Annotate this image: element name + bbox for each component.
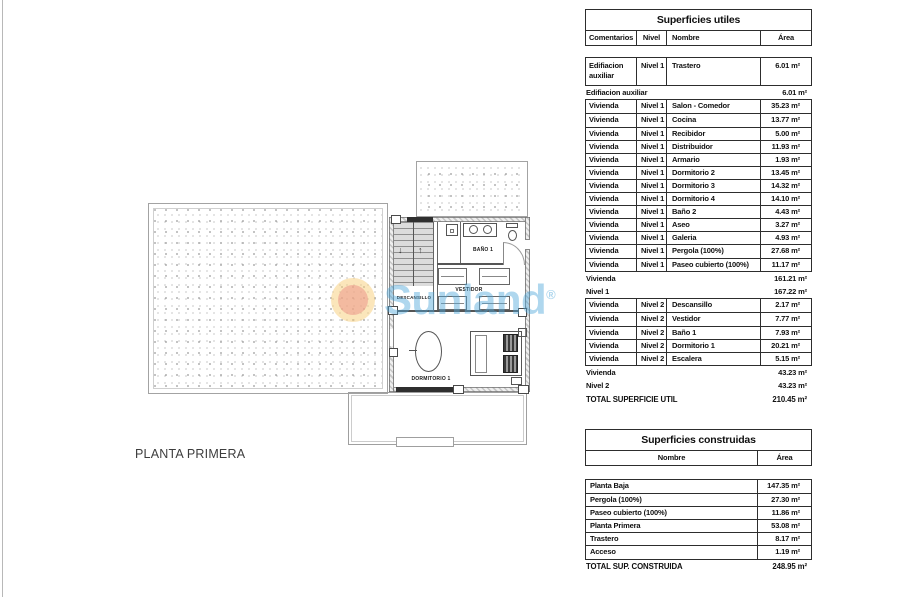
table-row: ViviendaNivel 1Paseo cubierto (100%)11.1… bbox=[586, 258, 811, 271]
cell: Nivel 1 bbox=[636, 245, 666, 257]
table-row: Edifiacion auxiliarNivel 1Trastero6.01 m… bbox=[586, 58, 811, 85]
value: 43.23 m² bbox=[778, 366, 812, 379]
column-header: Nivel bbox=[636, 31, 666, 45]
cell: Vivienda bbox=[586, 180, 636, 192]
cell: Vivienda bbox=[586, 193, 636, 205]
window-left bbox=[389, 329, 394, 346]
table-row: Planta Primera53.08 m² bbox=[586, 519, 811, 532]
cell: Nivel 1 bbox=[636, 167, 666, 179]
subtotal-row: Vivienda161.21 m² bbox=[585, 272, 812, 285]
cell: Nivel 1 bbox=[636, 100, 666, 113]
cell: Dormitorio 4 bbox=[666, 193, 760, 205]
table-superficies-construidas: Superficies construidas Nombre Área Plan… bbox=[585, 429, 812, 574]
cell: Vivienda bbox=[586, 100, 636, 113]
cell: Nivel 2 bbox=[636, 340, 666, 352]
cell: Vivienda bbox=[586, 154, 636, 166]
cell: Vivienda bbox=[586, 353, 636, 365]
cell: Nivel 2 bbox=[636, 313, 666, 325]
column-header: Nombre bbox=[666, 31, 760, 45]
cell: 11.93 m² bbox=[760, 141, 811, 153]
table-gap bbox=[585, 46, 812, 57]
window-right bbox=[525, 239, 530, 250]
cell: Nivel 1 bbox=[636, 141, 666, 153]
washbasin bbox=[446, 224, 458, 236]
table-row: ViviendaNivel 2Vestidor7.77 m² bbox=[586, 312, 811, 325]
bathtub-faucet bbox=[409, 350, 417, 351]
cell: Paseo cubierto (100%) bbox=[666, 259, 760, 271]
cell: 27.30 m² bbox=[757, 494, 811, 506]
partition-bath-left bbox=[460, 222, 461, 265]
toilet-tank bbox=[506, 223, 518, 228]
cell: Armario bbox=[666, 154, 760, 166]
cell: Pergola (100%) bbox=[586, 494, 757, 506]
subtotal-row: Edifiacion auxiliar6.01 m² bbox=[585, 86, 812, 99]
cell: 4.43 m² bbox=[760, 206, 811, 218]
cell: Planta Baja bbox=[586, 480, 757, 493]
cell: Dormitorio 1 bbox=[666, 340, 760, 352]
value: 248.95 m² bbox=[772, 560, 812, 575]
stair-arrow-down-icon: ↓ bbox=[398, 246, 403, 255]
subtotal-row: Nivel 1167.22 m² bbox=[585, 285, 812, 298]
table-row: ViviendaNivel 2Baño 17.93 m² bbox=[586, 326, 811, 339]
table-row: ViviendaNivel 1Dormitorio 414.10 m² bbox=[586, 192, 811, 205]
cell: 14.32 m² bbox=[760, 180, 811, 192]
table-row: Paseo cubierto (100%)11.86 m² bbox=[586, 506, 811, 519]
value: 161.21 m² bbox=[774, 272, 812, 285]
table-row: ViviendaNivel 1Baño 24.43 m² bbox=[586, 205, 811, 218]
cell: 1.19 m² bbox=[757, 546, 811, 558]
table-row: Acceso1.19 m² bbox=[586, 545, 811, 558]
cell: 53.08 m² bbox=[757, 520, 811, 532]
bed-footboard bbox=[475, 335, 487, 373]
column-header-row: Nombre Área bbox=[586, 451, 811, 465]
table-body: Planta Baja147.35 m²Pergola (100%)27.30 … bbox=[585, 479, 812, 574]
cell: Vivienda bbox=[586, 219, 636, 231]
column-header: Comentarios bbox=[586, 31, 636, 45]
cell: Nivel 2 bbox=[636, 299, 666, 312]
sink-right bbox=[483, 225, 492, 234]
room-label-dormitorio: DORMITORIO 1 bbox=[407, 376, 455, 382]
cell: Vestidor bbox=[666, 313, 760, 325]
cell: Acceso bbox=[586, 546, 757, 558]
watermark-brand-text: Sunland bbox=[384, 276, 546, 323]
cell: Vivienda bbox=[586, 245, 636, 257]
cell: Aseo bbox=[666, 219, 760, 231]
value: 6.01 m² bbox=[782, 86, 812, 99]
wall-marker bbox=[518, 385, 529, 394]
cell: Vivienda bbox=[586, 114, 636, 126]
slider-door-bottom bbox=[396, 387, 456, 392]
column-header: Área bbox=[757, 451, 811, 465]
total-row: TOTAL SUP. CONSTRUIDA248.95 m² bbox=[585, 560, 812, 575]
table-row: Planta Baja147.35 m² bbox=[586, 480, 811, 493]
table-row: ViviendaNivel 2Escalera5.15 m² bbox=[586, 352, 811, 365]
wall-marker bbox=[453, 385, 464, 394]
cell: 1.93 m² bbox=[760, 154, 811, 166]
table-header: Superficies utiles Comentarios Nivel Nom… bbox=[585, 9, 812, 46]
cell: Descansillo bbox=[666, 299, 760, 312]
table-title: Superficies utiles bbox=[586, 10, 811, 31]
cell: Paseo cubierto (100%) bbox=[586, 507, 757, 519]
cell: Nivel 1 bbox=[636, 180, 666, 192]
table-header: Superficies construidas Nombre Área bbox=[585, 429, 812, 466]
table-row: ViviendaNivel 2Descansillo2.17 m² bbox=[586, 299, 811, 312]
sheet-frame-left-line bbox=[2, 0, 3, 597]
cell: Nivel 1 bbox=[636, 219, 666, 231]
table-row: ViviendaNivel 1Dormitorio 213.45 m² bbox=[586, 166, 811, 179]
cell: Nivel 2 bbox=[636, 327, 666, 339]
column-header: Área bbox=[760, 31, 811, 45]
label: TOTAL SUPERFICIE UTIL bbox=[585, 393, 677, 408]
cell: Nivel 1 bbox=[636, 114, 666, 126]
cell: Recibidor bbox=[666, 128, 760, 140]
cell: Pergola (100%) bbox=[666, 245, 760, 257]
nightstand bbox=[511, 377, 522, 385]
table-grid-box: Edifiacion auxiliarNivel 1Trastero6.01 m… bbox=[585, 57, 812, 86]
table-gap bbox=[585, 466, 812, 479]
washbasin-bowl bbox=[450, 229, 454, 233]
cell: 3.27 m² bbox=[760, 219, 811, 231]
balcony-step bbox=[396, 437, 454, 447]
cell: 7.93 m² bbox=[760, 327, 811, 339]
cell: Vivienda bbox=[586, 167, 636, 179]
value: 167.22 m² bbox=[774, 285, 812, 298]
balcony-inner-line bbox=[351, 395, 524, 442]
cell: 7.77 m² bbox=[760, 313, 811, 325]
cell: Trastero bbox=[586, 533, 757, 545]
cell: 13.45 m² bbox=[760, 167, 811, 179]
cell: Escalera bbox=[666, 353, 760, 365]
cell: Cocina bbox=[666, 114, 760, 126]
cell: Planta Primera bbox=[586, 520, 757, 532]
table-row: ViviendaNivel 1Cocina13.77 m² bbox=[586, 113, 811, 126]
cell: Baño 1 bbox=[666, 327, 760, 339]
table-row: ViviendaNivel 1Armario1.93 m² bbox=[586, 153, 811, 166]
cell: 147.35 m² bbox=[757, 480, 811, 493]
value: 43.23 m² bbox=[778, 379, 812, 392]
bathtub bbox=[415, 331, 442, 372]
cell: 11.17 m² bbox=[760, 259, 811, 271]
bath-door-swing-arc bbox=[503, 242, 525, 265]
cell: Nivel 1 bbox=[636, 232, 666, 244]
cell: Nivel 1 bbox=[636, 154, 666, 166]
table-row: ViviendaNivel 1Recibidor5.00 m² bbox=[586, 127, 811, 140]
cell: Nivel 1 bbox=[636, 193, 666, 205]
cell: 35.23 m² bbox=[760, 100, 811, 113]
total-row: TOTAL SUPERFICIE UTIL210.45 m² bbox=[585, 393, 812, 408]
table-row: Pergola (100%)27.30 m² bbox=[586, 493, 811, 506]
cell: Distribuidor bbox=[666, 141, 760, 153]
column-header: Nombre bbox=[586, 451, 757, 465]
subtotal-row: Nivel 243.23 m² bbox=[585, 379, 812, 392]
cell: Galeria bbox=[666, 232, 760, 244]
cell: 4.93 m² bbox=[760, 232, 811, 244]
label: Nivel 1 bbox=[585, 285, 609, 298]
cell: 14.10 m² bbox=[760, 193, 811, 205]
wall-bath-bottom bbox=[437, 263, 504, 265]
registered-trademark-icon: ® bbox=[546, 287, 555, 302]
cell: Dormitorio 3 bbox=[666, 180, 760, 192]
cell: Salon - Comedor bbox=[666, 100, 760, 113]
pillow bbox=[503, 355, 518, 373]
cell: Nivel 1 bbox=[636, 206, 666, 218]
cell: Baño 2 bbox=[666, 206, 760, 218]
cell: 2.17 m² bbox=[760, 299, 811, 312]
cell: Vivienda bbox=[586, 299, 636, 312]
nightstand bbox=[518, 328, 527, 337]
wall-marker bbox=[389, 348, 398, 357]
table-row: ViviendaNivel 1Distribuidor11.93 m² bbox=[586, 140, 811, 153]
stair-arrow-up-icon: ↑ bbox=[418, 246, 423, 255]
subtotal-row: Vivienda43.23 m² bbox=[585, 366, 812, 379]
column-header-row: Comentarios Nivel Nombre Área bbox=[586, 31, 811, 45]
cell: 11.86 m² bbox=[757, 507, 811, 519]
pillow bbox=[503, 334, 518, 352]
table-row: ViviendaNivel 1Galeria4.93 m² bbox=[586, 231, 811, 244]
sink-left bbox=[469, 225, 478, 234]
cell: 5.00 m² bbox=[760, 128, 811, 140]
label: Nivel 2 bbox=[585, 379, 609, 392]
cell: Vivienda bbox=[586, 327, 636, 339]
cell: Vivienda bbox=[586, 141, 636, 153]
watermark-brand: Sunland® bbox=[384, 273, 555, 322]
cell: Nivel 2 bbox=[636, 353, 666, 365]
cell: Vivienda bbox=[586, 259, 636, 271]
cell: Vivienda bbox=[586, 206, 636, 218]
toilet-bowl bbox=[508, 230, 517, 241]
label: Vivienda bbox=[585, 366, 616, 379]
label: Edifiacion auxiliar bbox=[585, 86, 647, 99]
cell: 5.15 m² bbox=[760, 353, 811, 365]
cell: Nivel 1 bbox=[636, 259, 666, 271]
table-row: ViviendaNivel 1Dormitorio 314.32 m² bbox=[586, 179, 811, 192]
cell: Trastero bbox=[666, 58, 760, 85]
table-title: Superficies construidas bbox=[586, 430, 811, 451]
cell: 13.77 m² bbox=[760, 114, 811, 126]
wall-marker bbox=[391, 215, 401, 224]
floor-plan: ↓ ↑ DESCANSILLO BAÑO 1 VESTIDOR DORMITOR… bbox=[0, 0, 578, 600]
label: Vivienda bbox=[585, 272, 616, 285]
cell: 27.68 m² bbox=[760, 245, 811, 257]
value: 210.45 m² bbox=[772, 393, 812, 408]
cell: Vivienda bbox=[586, 128, 636, 140]
table-grid-box: Planta Baja147.35 m²Pergola (100%)27.30 … bbox=[585, 479, 812, 560]
watermark-sun-inner bbox=[338, 285, 368, 315]
label: TOTAL SUP. CONSTRUIDA bbox=[585, 560, 683, 575]
table-body: Edifiacion auxiliarNivel 1Trastero6.01 m… bbox=[585, 57, 812, 407]
cell: Nivel 1 bbox=[636, 58, 666, 85]
table-row: ViviendaNivel 1Pergola (100%)27.68 m² bbox=[586, 244, 811, 257]
table-row: ViviendaNivel 2Dormitorio 120.21 m² bbox=[586, 339, 811, 352]
upper-roof-stipple bbox=[416, 161, 528, 217]
cell: 8.17 m² bbox=[757, 533, 811, 545]
cell: 20.21 m² bbox=[760, 340, 811, 352]
cell: Vivienda bbox=[586, 232, 636, 244]
cell: Nivel 1 bbox=[636, 128, 666, 140]
cell: Vivienda bbox=[586, 340, 636, 352]
table-row: ViviendaNivel 1Salon - Comedor35.23 m² bbox=[586, 100, 811, 113]
room-label-bano: BAÑO 1 bbox=[468, 247, 498, 253]
table-grid-box: ViviendaNivel 2Descansillo2.17 m²Viviend… bbox=[585, 298, 812, 365]
table-row: ViviendaNivel 1Aseo3.27 m² bbox=[586, 218, 811, 231]
cell: Vivienda bbox=[586, 313, 636, 325]
table-row: Trastero8.17 m² bbox=[586, 532, 811, 545]
cell: 6.01 m² bbox=[760, 58, 811, 85]
cell: Dormitorio 2 bbox=[666, 167, 760, 179]
cell: Edifiacion auxiliar bbox=[586, 58, 636, 85]
plan-title: PLANTA PRIMERA bbox=[135, 447, 245, 461]
table-grid-box: ViviendaNivel 1Salon - Comedor35.23 m²Vi… bbox=[585, 99, 812, 271]
table-superficies-utiles: Superficies utiles Comentarios Nivel Nom… bbox=[585, 9, 812, 407]
